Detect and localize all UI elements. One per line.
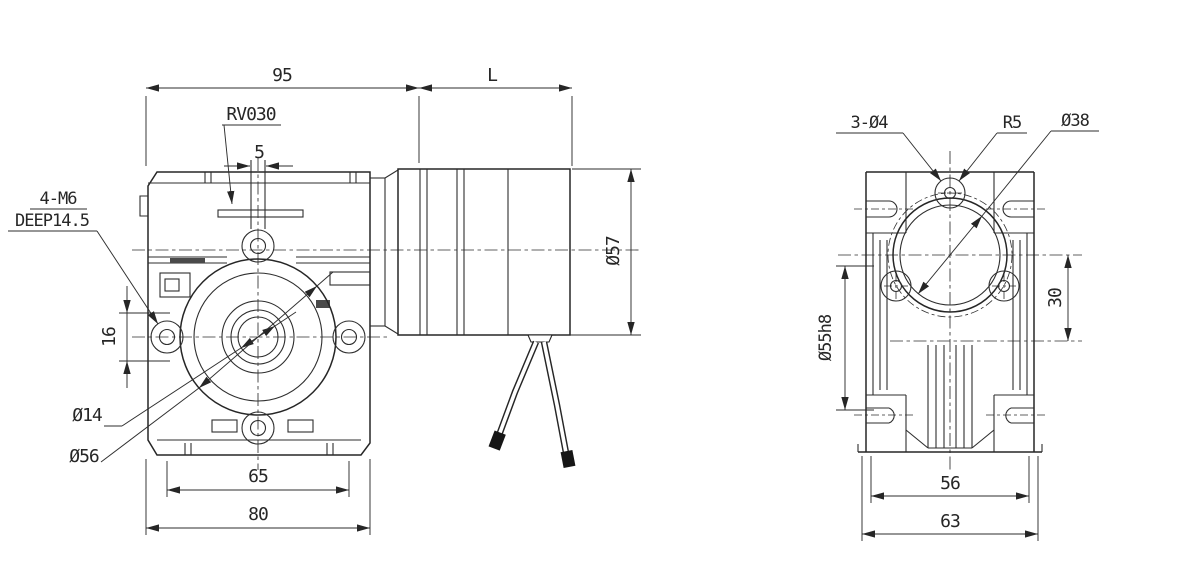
gearbox-drawing: 95 L RV030 5 4-M6 DEEP14.5 16 Ø14 Ø56 65… <box>0 0 1180 580</box>
dim-spigot-label: Ø56 <box>69 446 99 467</box>
motor-wires <box>489 335 576 468</box>
front-view-dimensions <box>836 131 1099 541</box>
gearbox-housing-outline <box>140 160 370 455</box>
front-view: 3-Ø4 R5 Ø38 Ø55h8 30 56 63 <box>816 111 1099 541</box>
drawing-canvas: 95 L RV030 5 4-M6 DEEP14.5 16 Ø14 Ø56 65… <box>0 0 1180 580</box>
tap-depth-note: DEEP14.5 <box>15 211 89 231</box>
dim-mount-holes-label: 3-Ø4 <box>851 113 889 133</box>
dim-slot-width-label: 5 <box>254 142 264 163</box>
dim-overall-width-label: 63 <box>940 511 960 532</box>
dim-output-bore-label: Ø14 <box>72 405 102 426</box>
wire-terminal <box>489 430 506 450</box>
dim-bolt-spacing-label: 65 <box>248 466 268 487</box>
dim-input-bore-label: Ø38 <box>1061 111 1089 131</box>
dim-motor-diameter-label: Ø57 <box>603 236 624 266</box>
side-view-centerlines <box>132 158 642 470</box>
dim-boss-radius-label: R5 <box>1003 113 1021 133</box>
side-view: 95 L RV030 5 4-M6 DEEP14.5 16 Ø14 Ø56 65… <box>8 65 642 535</box>
motor-outline <box>370 169 570 335</box>
dim-flange-offset-label: 16 <box>99 327 120 347</box>
dim-housing-length-label: 95 <box>272 65 292 86</box>
tapped-holes-note: 4-M6 <box>40 189 78 209</box>
side-view-dimensions <box>8 88 641 535</box>
dim-motor-length-label: L <box>487 65 498 86</box>
dim-center-distance-label: 30 <box>1045 288 1066 308</box>
dim-foot-spacing-label: 56 <box>940 473 960 494</box>
model-label: RV030 <box>226 104 275 125</box>
dim-housing-width-label: 80 <box>248 504 268 525</box>
dim-output-boss-label: Ø55h8 <box>816 314 836 361</box>
wire-terminal <box>561 450 576 468</box>
